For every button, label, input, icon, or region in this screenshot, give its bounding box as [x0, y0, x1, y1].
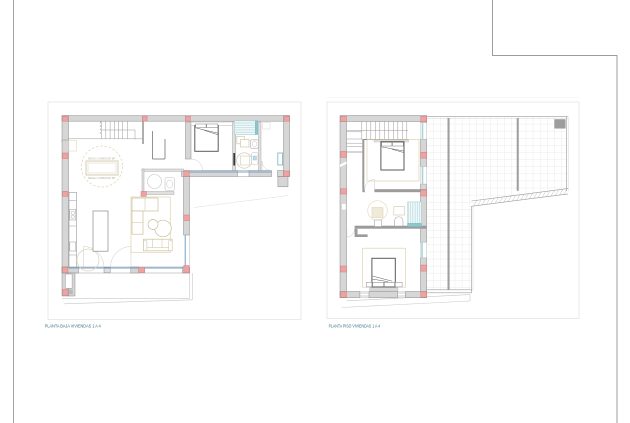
svg-text:MESA COMEDOR 8P: MESA COMEDOR 8P	[88, 176, 115, 180]
svg-text:MESA COMEDOR 8P: MESA COMEDOR 8P	[88, 157, 115, 161]
svg-text:PLANTA BAJA VIVIENDAS 1 A 4: PLANTA BAJA VIVIENDAS 1 A 4	[45, 323, 101, 328]
svg-text:PLANTA PISO VIVIENDAS 1 A 4: PLANTA PISO VIVIENDAS 1 A 4	[329, 323, 381, 328]
